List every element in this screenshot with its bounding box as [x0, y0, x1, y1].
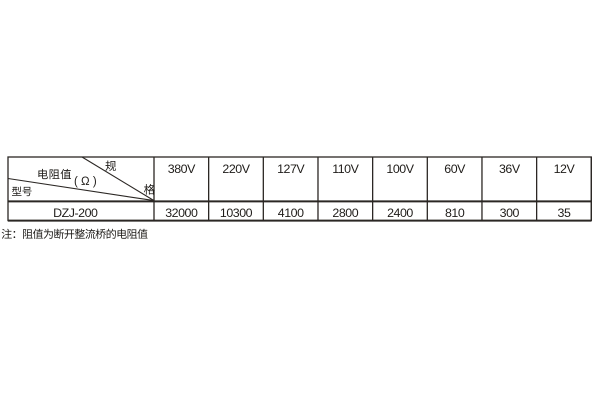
svg-text:32000: 32000	[165, 206, 198, 220]
svg-text:DZJ-200: DZJ-200	[53, 206, 98, 220]
svg-text:12V: 12V	[554, 162, 576, 176]
svg-text:810: 810	[445, 206, 465, 220]
svg-text:127V: 127V	[277, 162, 305, 176]
svg-text:220V: 220V	[222, 162, 250, 176]
svg-text:110V: 110V	[332, 162, 359, 176]
svg-text:35: 35	[558, 206, 571, 220]
svg-text:60V: 60V	[444, 162, 466, 176]
svg-text:4100: 4100	[278, 206, 304, 220]
svg-text:300: 300	[500, 206, 520, 220]
svg-text:10300: 10300	[220, 206, 253, 220]
svg-text:100V: 100V	[386, 162, 414, 176]
svg-text:36V: 36V	[499, 162, 521, 176]
svg-text:( Ω ): ( Ω )	[74, 176, 97, 188]
svg-text:2800: 2800	[332, 206, 358, 220]
svg-text:2400: 2400	[387, 206, 413, 220]
svg-text:380V: 380V	[168, 162, 196, 176]
